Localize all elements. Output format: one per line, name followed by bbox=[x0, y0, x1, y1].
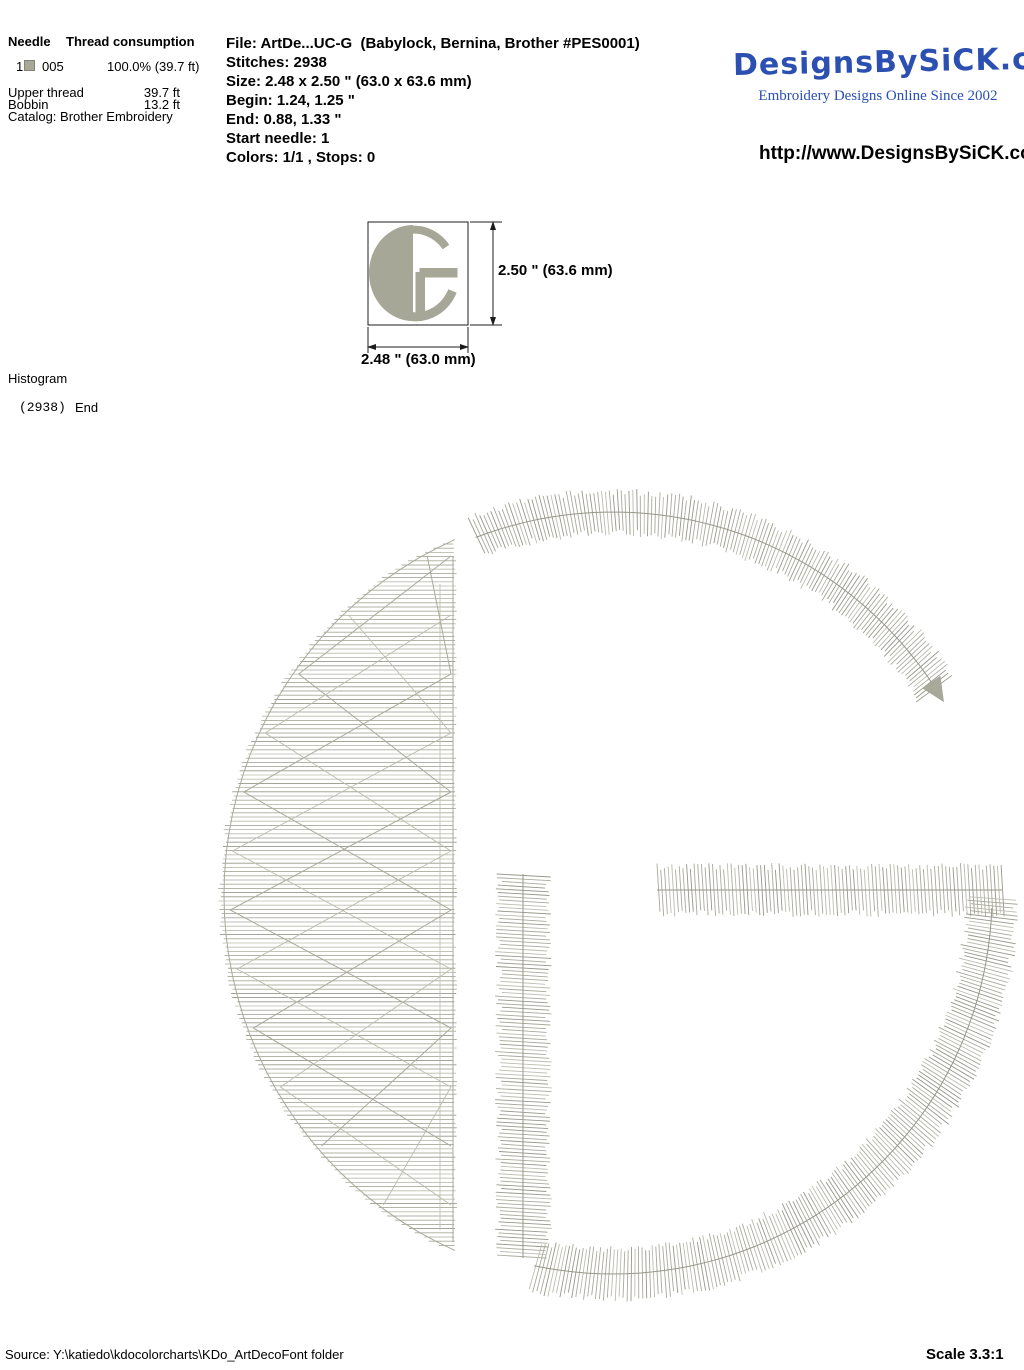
scale-label: Scale 3.3:1 bbox=[926, 1347, 1004, 1362]
stitchout-canvas bbox=[218, 489, 1018, 1302]
thread-color-swatch bbox=[24, 60, 35, 71]
top-arc-band bbox=[468, 489, 952, 702]
needle-number: 1 bbox=[16, 60, 23, 73]
source-path: Source: Y:\katiedo\kdocolorcharts\KDo_Ar… bbox=[5, 1348, 344, 1361]
begin-line: Begin: 1.24, 1.25 " bbox=[226, 93, 355, 108]
brand-logo: DesignsBySiCK.com bbox=[733, 44, 1024, 82]
needle-column-header: Needle bbox=[8, 35, 51, 48]
start-needle-line: Start needle: 1 bbox=[226, 131, 329, 146]
histogram-end-label: End bbox=[75, 401, 98, 414]
height-dimension-label: 2.50 " (63.6 mm) bbox=[498, 263, 613, 278]
thumb-crossbar bbox=[420, 268, 458, 278]
hook-band bbox=[529, 897, 1018, 1302]
width-dimension-label: 2.48 " (63.0 mm) bbox=[361, 352, 476, 367]
histogram-stitch-count: (2938) bbox=[19, 401, 66, 414]
histogram-title: Histogram bbox=[8, 372, 67, 385]
thumb-stem bbox=[416, 272, 426, 317]
thread-consumption-value: 100.0% (39.7 ft) bbox=[107, 60, 200, 73]
stem-band bbox=[495, 874, 552, 1258]
design-sheet-canvas bbox=[0, 0, 1024, 1370]
design-thumbnail-glyph bbox=[369, 225, 458, 321]
stitches-line: Stitches: 2938 bbox=[226, 55, 327, 70]
end-line: End: 0.88, 1.33 " bbox=[226, 112, 342, 127]
catalog-line: Catalog: Brother Embroidery bbox=[8, 110, 173, 123]
thread-code: 005 bbox=[42, 60, 64, 73]
brand-url: http://www.DesignsBySiCK.com bbox=[759, 144, 1024, 163]
crossbar-band bbox=[657, 863, 1004, 917]
thumb-halfdisc bbox=[369, 225, 413, 321]
thread-consumption-column-header: Thread consumption bbox=[66, 35, 195, 48]
colors-line: Colors: 1/1 , Stops: 0 bbox=[226, 150, 375, 165]
file-line: File: ArtDe...UC-G (Babylock, Bernina, B… bbox=[226, 36, 640, 51]
size-line: Size: 2.48 x 2.50 " (63.0 x 63.6 mm) bbox=[226, 74, 472, 89]
brand-tagline: Embroidery Designs Online Since 2002 bbox=[733, 89, 1023, 104]
fill-hatch bbox=[218, 540, 457, 1251]
